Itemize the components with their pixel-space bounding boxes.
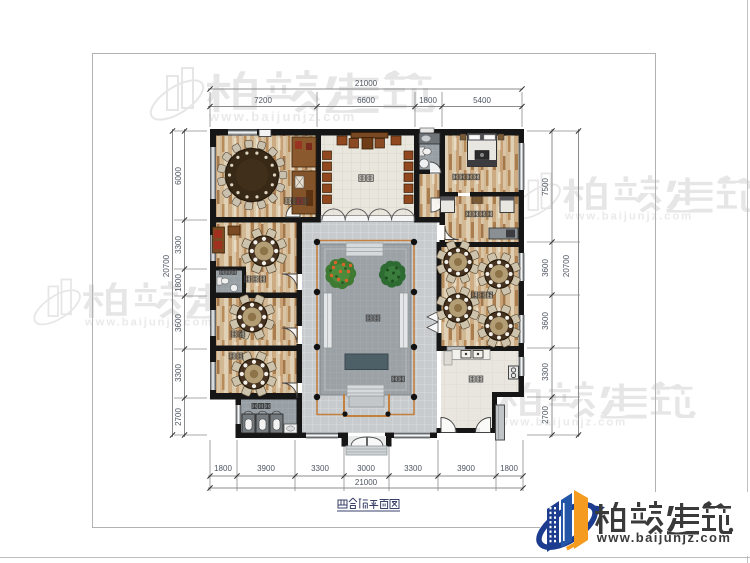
svg-text:21000: 21000 — [355, 79, 378, 88]
svg-text:3600: 3600 — [174, 314, 183, 332]
svg-text:3300: 3300 — [541, 363, 550, 381]
svg-text:3300: 3300 — [404, 464, 422, 473]
svg-text:6000: 6000 — [174, 167, 183, 185]
svg-text:3600: 3600 — [541, 312, 550, 330]
svg-text:5400: 5400 — [473, 96, 491, 105]
svg-text:3600: 3600 — [541, 259, 550, 277]
svg-text:3000: 3000 — [357, 464, 375, 473]
svg-text:1800: 1800 — [500, 464, 518, 473]
svg-text:7200: 7200 — [254, 96, 272, 105]
svg-text:20700: 20700 — [562, 254, 571, 277]
svg-text:1800: 1800 — [214, 464, 232, 473]
svg-text:1800: 1800 — [174, 274, 183, 292]
svg-text:1800: 1800 — [419, 96, 437, 105]
svg-text:2700: 2700 — [541, 406, 550, 424]
svg-text:3300: 3300 — [311, 464, 329, 473]
svg-text:3300: 3300 — [174, 236, 183, 254]
svg-text:20700: 20700 — [162, 254, 171, 277]
svg-text:3900: 3900 — [257, 464, 275, 473]
svg-text:21000: 21000 — [355, 478, 378, 487]
svg-text:2700: 2700 — [174, 408, 183, 426]
svg-text:www.baijunjz.com: www.baijunjz.com — [596, 530, 732, 545]
svg-text:7500: 7500 — [541, 178, 550, 196]
svg-text:6600: 6600 — [357, 96, 375, 105]
svg-text:3900: 3900 — [457, 464, 475, 473]
svg-text:3300: 3300 — [174, 364, 183, 382]
